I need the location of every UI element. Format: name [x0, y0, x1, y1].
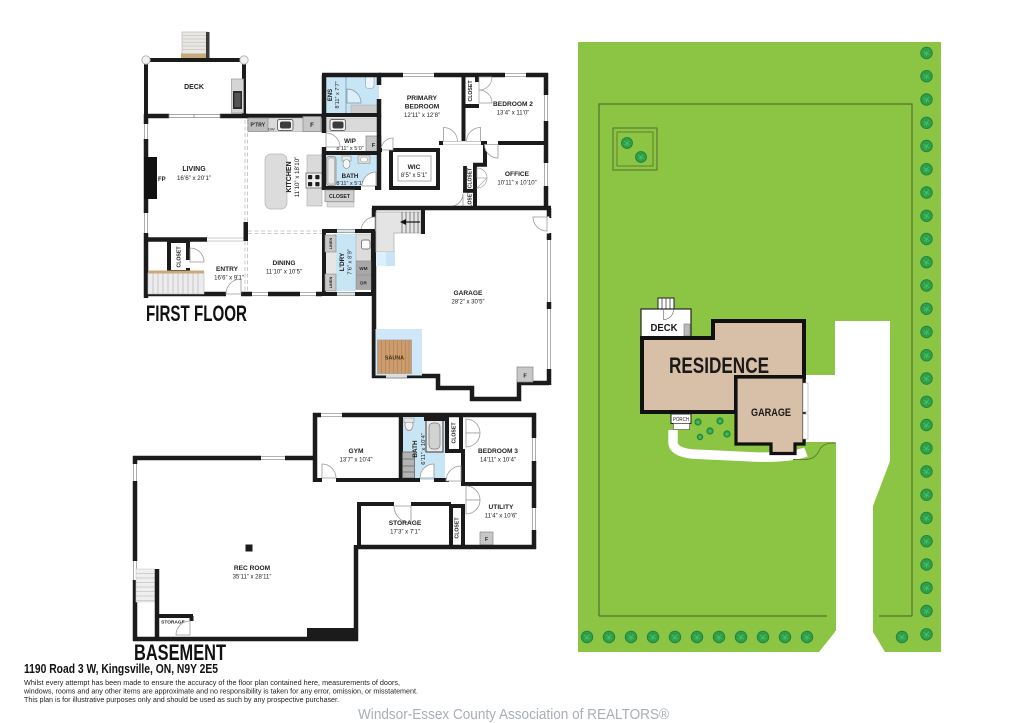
svg-text:WIC: WIC [408, 164, 421, 171]
svg-text:11’10” x 18’10”: 11’10” x 18’10” [294, 157, 301, 197]
svg-text:F: F [485, 537, 488, 543]
svg-text:8’11” x 7’7”: 8’11” x 7’7” [335, 81, 341, 108]
svg-text:PORCH: PORCH [673, 417, 689, 423]
svg-text:Whilst every attempt has been: Whilst every attempt has been made to en… [24, 680, 400, 687]
svg-text:KITCHEN: KITCHEN [286, 161, 293, 192]
svg-text:BEDROOM 3: BEDROOM 3 [478, 448, 518, 455]
svg-text:DINING: DINING [272, 260, 295, 267]
svg-text:windows, rooms and any other i: windows, rooms and any other items are a… [23, 689, 418, 696]
svg-text:6’11” x 10’4”: 6’11” x 10’4” [421, 433, 427, 465]
svg-text:BATH: BATH [342, 173, 359, 180]
svg-text:GARAGE: GARAGE [454, 290, 484, 297]
svg-text:L’DRY: L’DRY [339, 252, 346, 271]
svg-text:ENS: ENS [328, 89, 334, 101]
svg-text:13’7” x 10’4”: 13’7” x 10’4” [339, 458, 372, 464]
svg-text:7’6” x 8’9”: 7’6” x 8’9” [348, 249, 354, 275]
svg-text:CLOSET: CLOSET [329, 194, 351, 200]
svg-text:P’TRY: P’TRY [251, 123, 266, 129]
svg-text:WM: WM [359, 266, 367, 271]
svg-text:13’4” x 11’0”: 13’4” x 11’0” [497, 111, 530, 117]
svg-text:CLOSET: CLOSET [468, 168, 474, 188]
svg-text:SAUNA: SAUNA [385, 356, 404, 362]
svg-text:BEDROOM: BEDROOM [405, 104, 440, 111]
svg-text:UTILITY: UTILITY [489, 504, 515, 511]
svg-text:11’10” x 10’5”: 11’10” x 10’5” [266, 270, 302, 276]
svg-text:STORAGE: STORAGE [389, 520, 422, 527]
svg-text:17’3” x 7’1”: 17’3” x 7’1” [390, 530, 420, 536]
svg-text:10’11” x 10’10”: 10’11” x 10’10” [497, 181, 536, 187]
svg-text:BEDROOM 2: BEDROOM 2 [493, 101, 533, 108]
svg-text:FP: FP [158, 177, 166, 183]
svg-text:REC ROOM: REC ROOM [234, 565, 271, 572]
svg-text:LIVING: LIVING [182, 166, 206, 173]
svg-text:FIRST FLOOR: FIRST FLOOR [146, 301, 247, 326]
svg-text:14’11” x 10’4”: 14’11” x 10’4” [480, 458, 516, 464]
svg-text:CLOSET: CLOSET [452, 422, 458, 444]
svg-text:RESIDENCE: RESIDENCE [669, 353, 769, 378]
svg-text:LINEN: LINEN [329, 238, 333, 250]
svg-text:GYM: GYM [348, 448, 364, 455]
svg-text:35’11” x 28’11”: 35’11” x 28’11” [233, 575, 272, 581]
svg-text:Windsor-Essex County Associati: Windsor-Essex County Association of REAL… [358, 707, 669, 723]
svg-text:DECK: DECK [184, 84, 204, 91]
svg-text:11’4” x 10’6”: 11’4” x 10’6” [485, 514, 518, 520]
svg-text:OFFICE: OFFICE [505, 171, 530, 178]
svg-text:DECK: DECK [651, 323, 679, 334]
svg-text:DW: DW [268, 127, 275, 132]
svg-text:BATH: BATH [412, 440, 419, 458]
svg-text:1190 Road 3 W, Kingsville, ON,: 1190 Road 3 W, Kingsville, ON, N9Y 2E5 [24, 661, 218, 676]
svg-text:ENTRY: ENTRY [216, 266, 239, 273]
svg-text:28’2” x 30’5”: 28’2” x 30’5” [451, 300, 484, 306]
svg-text:CLOSET: CLOSET [177, 246, 183, 268]
svg-text:LINEN: LINEN [329, 277, 333, 289]
svg-text:DR: DR [360, 281, 367, 286]
svg-text:8’5” x 5’1”: 8’5” x 5’1” [401, 173, 427, 179]
svg-text:16’6” x 9’1”: 16’6” x 9’1” [214, 276, 244, 282]
svg-text:PRIMARY: PRIMARY [407, 95, 438, 102]
svg-text:F: F [310, 123, 314, 129]
svg-text:This plan is for illustrative: This plan is for illustrative purposes o… [24, 697, 339, 704]
svg-text:GARAGE: GARAGE [751, 407, 791, 419]
svg-text:CLOSET: CLOSET [455, 517, 461, 539]
svg-text:CLOSET: CLOSET [468, 80, 474, 102]
svg-text:WIP: WIP [344, 138, 356, 145]
svg-text:16’6” x 20’1”: 16’6” x 20’1” [177, 175, 211, 182]
svg-text:12’11” x 12’8”: 12’11” x 12’8” [404, 113, 440, 119]
